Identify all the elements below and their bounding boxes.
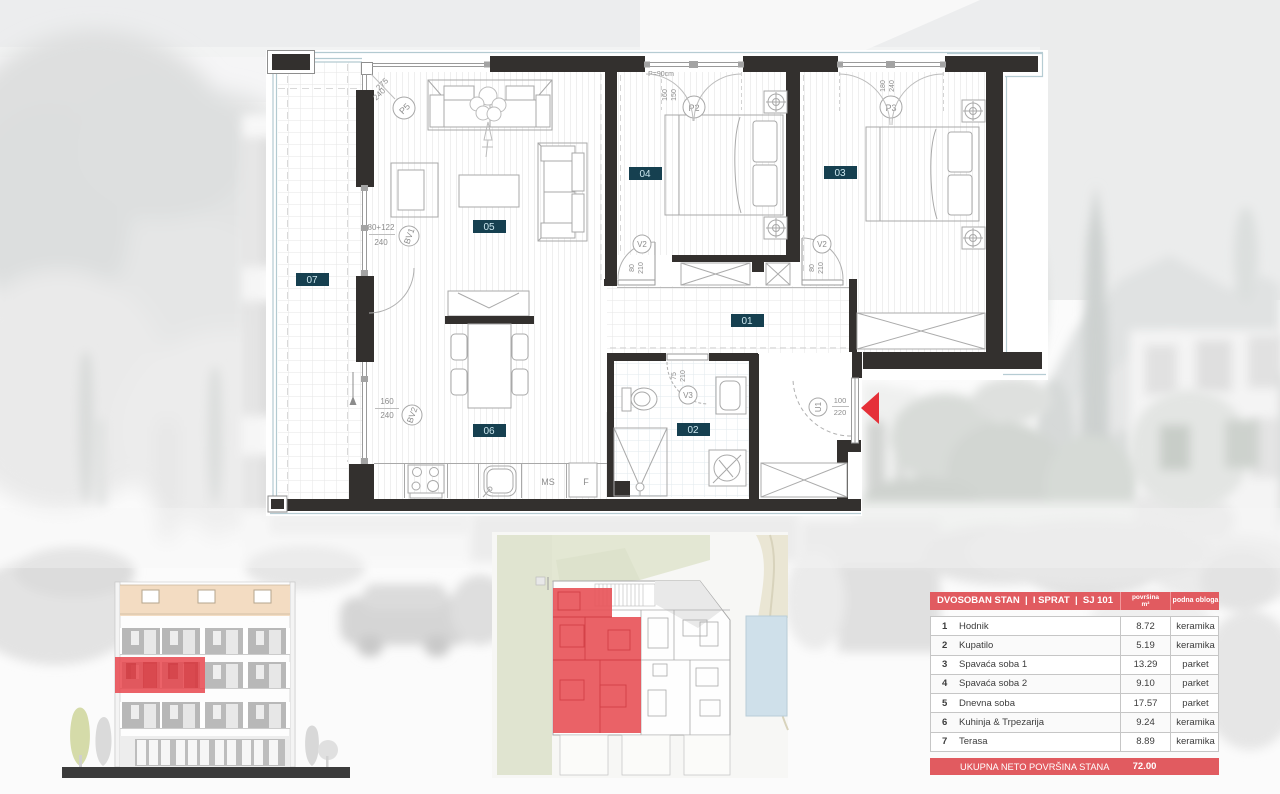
svg-text:06: 06 <box>483 426 495 437</box>
svg-text:240: 240 <box>889 80 896 92</box>
svg-text:03: 03 <box>834 168 846 179</box>
svg-text:80+122: 80+122 <box>368 223 395 232</box>
svg-text:04: 04 <box>639 169 651 180</box>
svg-text:05: 05 <box>483 222 495 233</box>
svg-text:75: 75 <box>671 372 678 380</box>
svg-text:160: 160 <box>662 89 669 101</box>
svg-text:V2: V2 <box>637 240 647 249</box>
svg-text:240: 240 <box>380 411 394 420</box>
svg-text:240: 240 <box>374 238 388 247</box>
svg-text:01: 01 <box>741 316 753 327</box>
svg-text:U1: U1 <box>814 401 823 412</box>
svg-text:180: 180 <box>880 80 887 92</box>
svg-text:210: 210 <box>818 262 825 274</box>
svg-text:100: 100 <box>834 396 847 405</box>
svg-text:160: 160 <box>380 397 394 406</box>
svg-text:150: 150 <box>671 89 678 101</box>
svg-text:V2: V2 <box>817 240 827 249</box>
svg-text:F: F <box>583 477 589 487</box>
svg-text:80: 80 <box>629 264 636 272</box>
svg-text:02: 02 <box>687 425 699 436</box>
svg-text:210: 210 <box>638 262 645 274</box>
svg-text:V3: V3 <box>683 391 693 400</box>
svg-text:MS: MS <box>541 477 555 487</box>
svg-text:220: 220 <box>834 408 847 417</box>
svg-text:80: 80 <box>809 264 816 272</box>
svg-text:07: 07 <box>306 275 318 286</box>
svg-text:210: 210 <box>680 370 687 382</box>
